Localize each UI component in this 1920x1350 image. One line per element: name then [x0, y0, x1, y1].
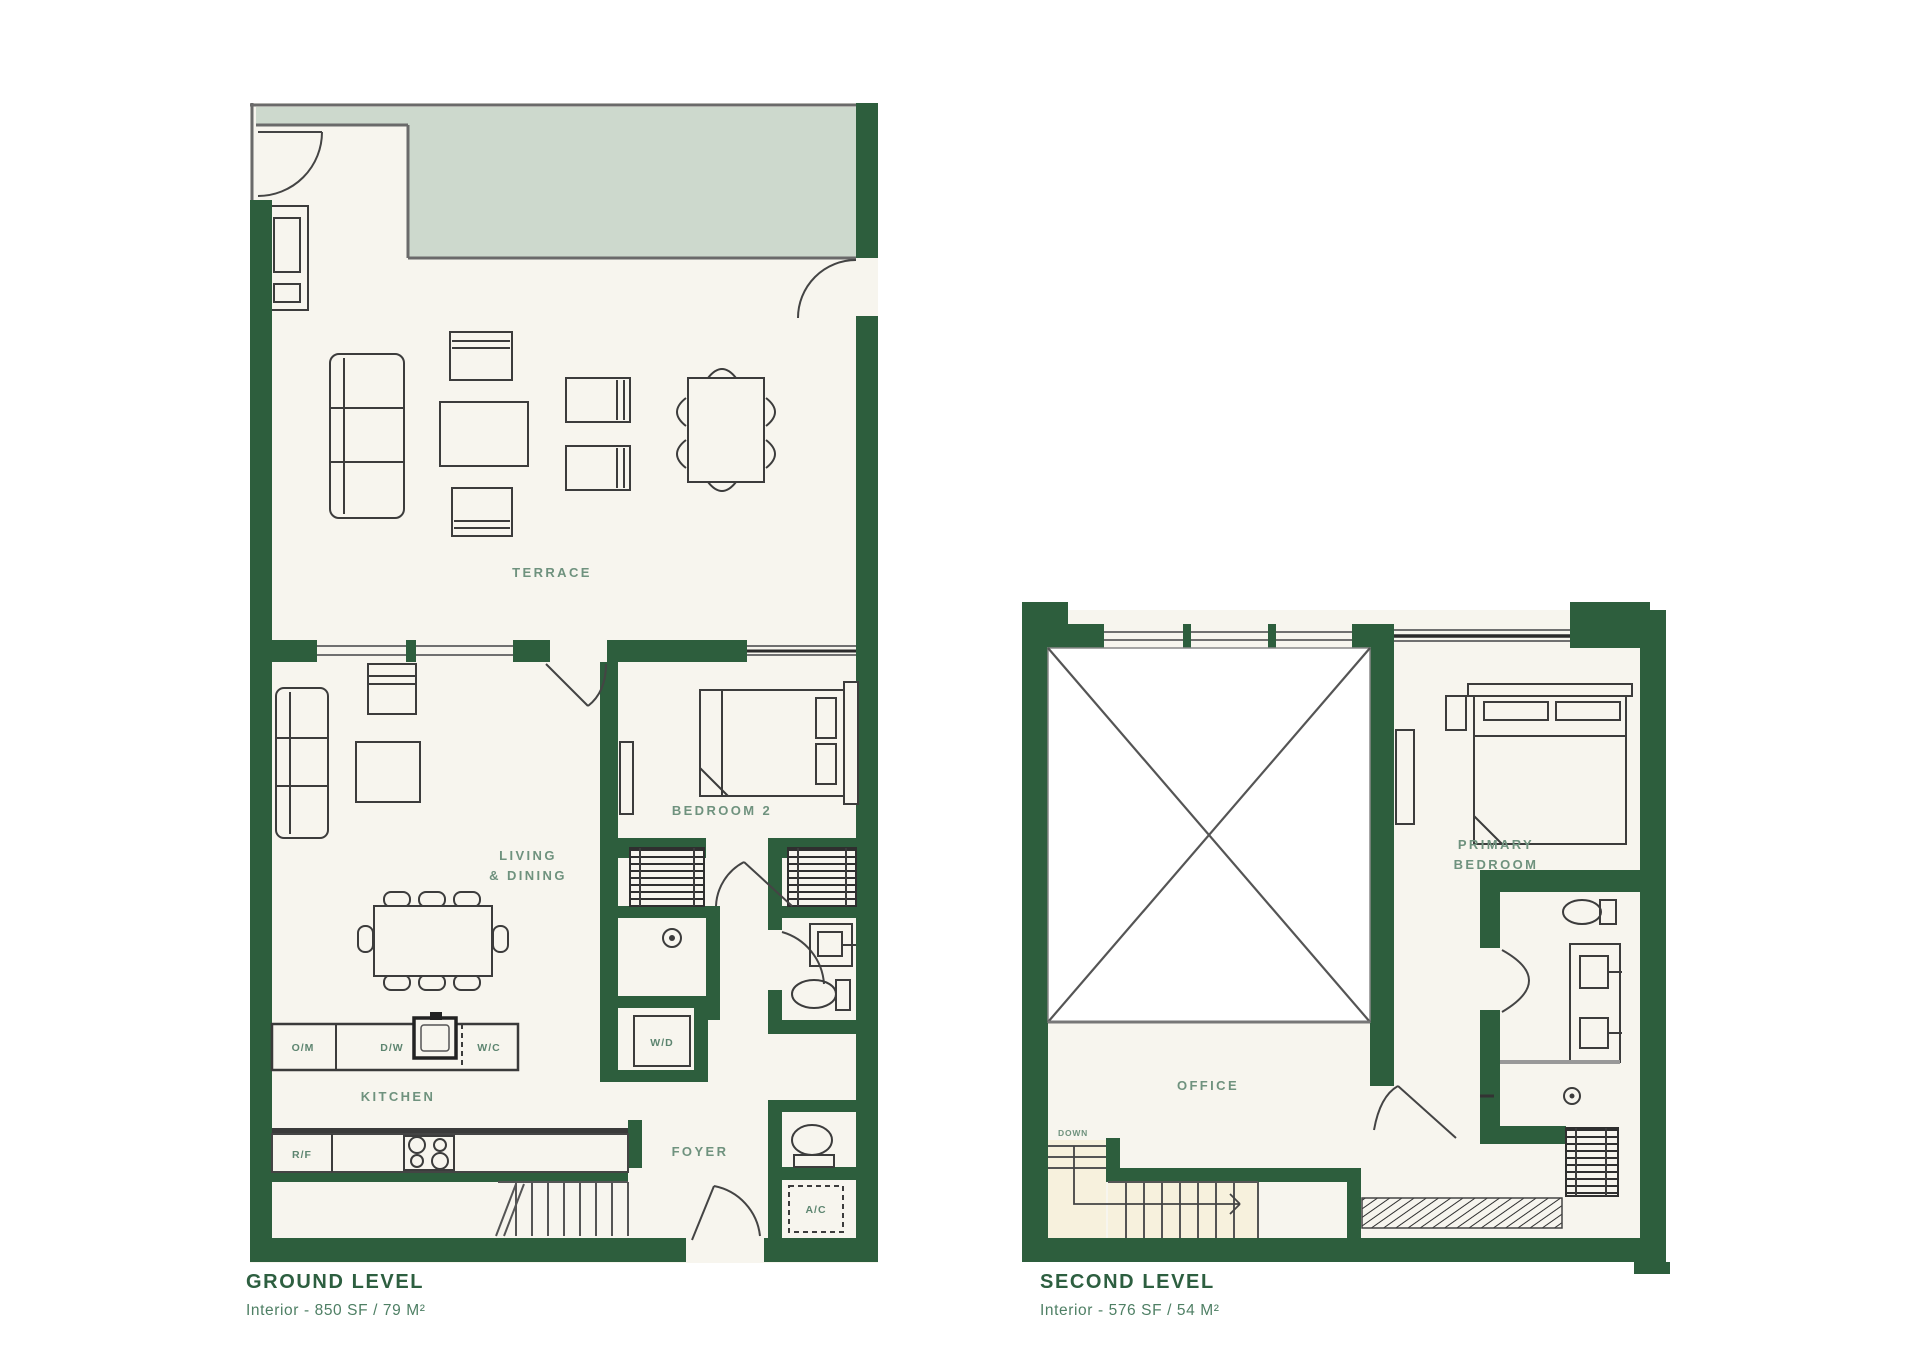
second-level-area: Interior - 576 SF / 54 M²	[1040, 1302, 1220, 1319]
ground-level-caption: GROUND LEVEL	[246, 1271, 424, 1293]
second-level-plan: PRIMARY BEDROOM	[1022, 602, 1670, 1319]
room-label-primary-1: PRIMARY	[1458, 837, 1534, 852]
fridge-label: R/F	[292, 1149, 312, 1161]
down-label: DOWN	[1058, 1128, 1088, 1138]
terrace-sofa	[330, 354, 404, 518]
floorplan-page: TERRACE LIVING & DINING	[0, 0, 1920, 1350]
bedroom2-dresser	[620, 742, 633, 814]
hall-closet	[1362, 1198, 1562, 1228]
floorplan-drawing: TERRACE LIVING & DINING	[0, 0, 1920, 1350]
room-label-kitchen: KITCHEN	[361, 1089, 436, 1104]
kitchen-counter: R/F	[272, 1128, 628, 1172]
wine-cooler-label: W/C	[477, 1042, 500, 1054]
open-to-below-void	[1048, 648, 1370, 1022]
terrace-cabinet	[266, 206, 308, 310]
primary-dresser	[1396, 730, 1414, 824]
room-label-bedroom2: BEDROOM 2	[672, 803, 772, 818]
terrace-cover-strip	[256, 107, 872, 125]
ground-level-area: Interior - 850 SF / 79 M²	[246, 1302, 426, 1319]
room-label-office: OFFICE	[1177, 1078, 1239, 1093]
washer-dryer-label: W/D	[650, 1037, 673, 1049]
oven-microwave-label: O/M	[292, 1042, 315, 1054]
bedroom2-bed	[700, 682, 858, 804]
terrace-dining-set	[677, 369, 775, 491]
second-top-windows	[1104, 624, 1570, 648]
terrace-loveseat-bottom	[452, 488, 512, 536]
primary-bed	[1468, 684, 1632, 844]
dishwasher-label: D/W	[380, 1042, 403, 1054]
ac-label: A/C	[805, 1204, 826, 1216]
terrace-side-gate-gap	[856, 258, 878, 316]
living-side-table	[356, 742, 420, 802]
living-armchair	[368, 664, 416, 714]
entry-door-gap	[686, 1238, 764, 1262]
room-label-primary-2: BEDROOM	[1454, 857, 1539, 872]
living-sofa	[276, 688, 328, 838]
ground-level-plan: TERRACE LIVING & DINING	[246, 103, 878, 1319]
dining-table-set	[358, 892, 508, 990]
primary-nightstand	[1446, 696, 1466, 730]
room-label-living-1: LIVING	[499, 848, 557, 863]
primary-closet	[1566, 1128, 1618, 1196]
second-level-caption: SECOND LEVEL	[1040, 1271, 1215, 1293]
terrace-loveseat-top	[450, 332, 512, 380]
terrace-coffee-table	[440, 402, 528, 466]
room-label-terrace: TERRACE	[512, 565, 592, 580]
room-label-foyer: FOYER	[672, 1144, 729, 1159]
terrace-cover-main	[408, 125, 874, 258]
room-label-living-2: & DINING	[489, 868, 567, 883]
